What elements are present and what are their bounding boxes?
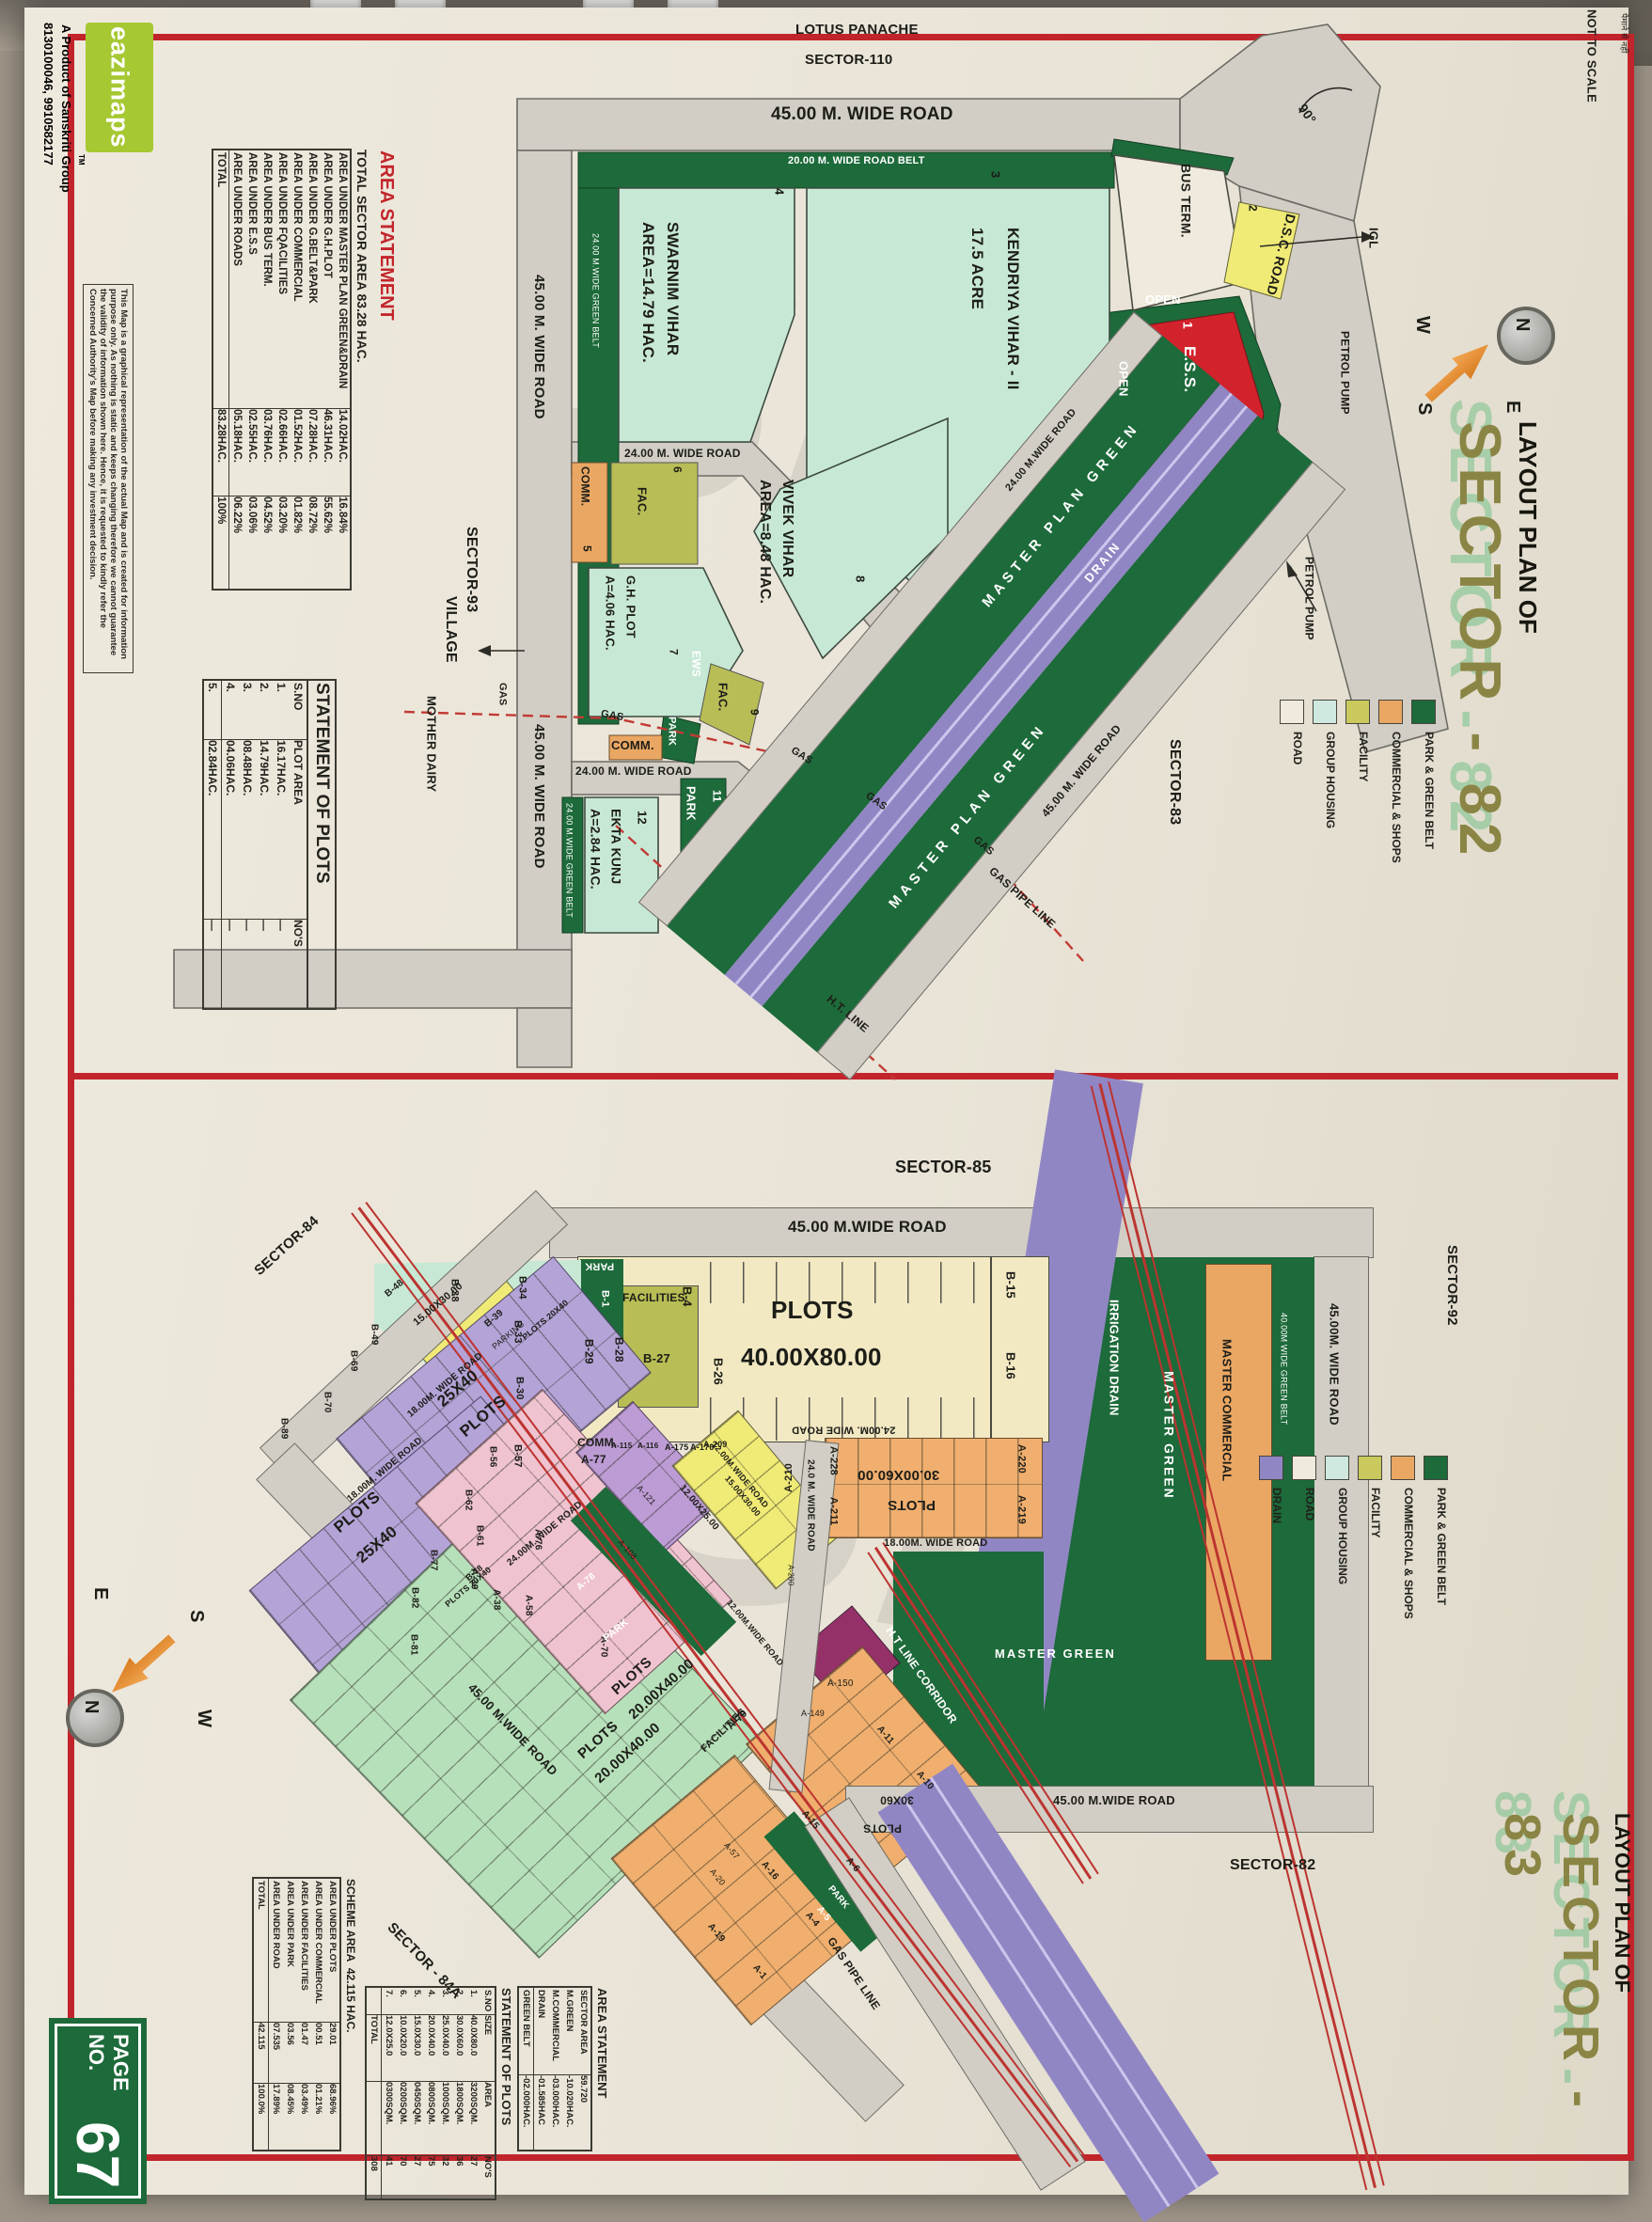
table-cell: 14.02HAC.	[335, 408, 350, 496]
map-label-village: VILLAGE	[442, 596, 458, 663]
map-label-lotus1: LOTUS PANACHE	[795, 23, 919, 38]
legend-label: PARK & GREEN BELT	[1423, 732, 1436, 849]
table-cell: 01.47	[297, 2022, 311, 2083]
map-label-a175: A-175	[665, 1443, 689, 1452]
table-cell: 5.	[204, 683, 221, 739]
table-title: AREA STATEMENT	[372, 149, 400, 591]
map-label-plots_word: PLOTS	[888, 1497, 936, 1512]
map-label-open: OPEN	[1145, 293, 1181, 307]
legend-sector-83: PARK & GREEN BELTCOMMERCIAL & SHOPSFACIL…	[1251, 1456, 1448, 1653]
legend-color-chip	[1391, 1456, 1415, 1480]
scheme-title-label: SCHEME AREA	[344, 1879, 357, 1962]
table-cell: AREA UNDER PLOTS	[325, 1881, 339, 2022]
map-label-b49: B-49	[369, 1324, 379, 1345]
map-label-b29: B-29	[583, 1339, 595, 1364]
table-cell: AREA UNDER FQACILITIES	[275, 152, 290, 408]
table-cell: 308	[367, 2155, 381, 2194]
table-cell: 08.45%	[283, 2083, 297, 2144]
map-label-n5: 5	[581, 545, 593, 552]
map-label-mgreen: MASTER GREEN	[1162, 1371, 1176, 1500]
map-label-belt24: 24.00 M.WIDE GREEN BELT	[564, 803, 573, 918]
map-label-a39: A-39	[468, 1568, 479, 1589]
table-cell: 29.01	[325, 2022, 339, 2083]
map-label-park: PARK	[585, 1260, 614, 1271]
map-label-vivek2: AREA=8.48 HAC.	[756, 480, 772, 604]
table-cell: 06.22%	[229, 496, 244, 568]
compass-e: E	[90, 1587, 110, 1600]
title-main: SECTOR - 83	[1493, 1813, 1610, 2189]
map-label-a77: A-77	[581, 1454, 606, 1466]
legend-label: GROUP HOUSING	[1324, 732, 1337, 828]
table-row: AREA UNDER COMMERCIAL00.5101.21%	[311, 1879, 325, 2150]
table-cell: —	[239, 919, 256, 999]
compass-s: S	[186, 1610, 206, 1623]
map-label-n4: 4	[773, 188, 786, 195]
map-label-fac: FAC.	[636, 487, 649, 515]
table-cell: 02.66HAC.	[275, 408, 290, 496]
legend-item: GROUP HOUSING	[1313, 700, 1337, 1010]
legend-item: FACILITY	[1345, 700, 1370, 1010]
legend-color-chip	[1292, 1456, 1316, 1480]
table-cell: 46.31HAC.	[320, 408, 335, 496]
map-label-road45: 45.00 M. WIDE ROAD	[771, 105, 953, 124]
map-label-b62: B-62	[463, 1489, 473, 1510]
table-cell: 0300SQM.	[382, 2081, 396, 2155]
table-cell: 08.48HAC.	[239, 739, 256, 919]
table-cell: 36	[452, 2155, 466, 2194]
map-label-n11: 11	[711, 790, 723, 802]
table-cell: 07.535	[269, 2022, 283, 2083]
map-label-scale_note_hi: पैमाने से नहीं	[1619, 13, 1628, 54]
table-cell: 4.	[424, 1990, 438, 2014]
map-label-a209: A-209	[703, 1441, 728, 1449]
map-label-gh2: A=4.06 HAC.	[604, 575, 617, 651]
table-cell: TOTAL	[213, 152, 228, 408]
map-label-a149: A-149	[801, 1710, 825, 1718]
table-row: 4.20.0X40.00800SQM.75	[424, 1988, 438, 2198]
table-row: 5.02.84HAC.—	[204, 681, 222, 1008]
table-cell: 4.	[222, 683, 239, 739]
table-cell: 3.	[438, 1990, 452, 2014]
legend-color-chip	[1313, 700, 1337, 724]
map-label-size3060: 30.00X60.00	[857, 1467, 939, 1482]
legend-color-chip	[1424, 1456, 1448, 1480]
legend-color-chip	[1325, 1456, 1349, 1480]
map-label-a115: A-115	[611, 1442, 632, 1450]
map-label-road24: 24.00 M. WIDE ROAD	[624, 448, 741, 460]
table-row: 2.30.0X60.01800SQM.36	[452, 1988, 466, 2198]
table-cell: AREA UNDER PARK	[283, 1881, 297, 2022]
map-label-b28: B-28	[613, 1337, 625, 1363]
map-label-road24: 24.00 M. WIDE ROAD	[575, 765, 692, 778]
map-label-petrol: PETROL PUMP	[1303, 557, 1315, 636]
map-label-sector82b: SECTOR-82	[1230, 1858, 1315, 1874]
table-cell: 0800SQM.	[424, 2081, 438, 2155]
map-label-mgreen: MASTER GREEN	[995, 1647, 1116, 1661]
statement-of-plots-83: STATEMENT OF PLOTS S.NOSIZEAREANO'S1.40.…	[365, 1986, 516, 2200]
table-row: 1.16.17HAC.—	[273, 681, 290, 1008]
map-label-road24: 24.00M. WIDE ROAD	[792, 1424, 895, 1435]
table-cell: AREA UNDER MASTER PLAN GREEN&DRAIN	[335, 152, 350, 408]
table-cell: 0450SQM.	[410, 2081, 424, 2155]
legend-color-chip	[1280, 700, 1304, 724]
table-cell: 25.0X40.0	[438, 2014, 452, 2081]
table-row: AREA UNDER E.S.S02.55HAC.03.06%	[244, 150, 260, 589]
compass-sector-82: N W S E	[1401, 299, 1561, 440]
table-row: 3.08.48HAC.—	[239, 681, 256, 1008]
scheme-area-table-83: SCHEME AREA 42.115 HAC. AREA UNDER PLOTS…	[252, 1877, 360, 2151]
map-label-b89: B-89	[278, 1418, 289, 1439]
map-label-n7: 7	[668, 649, 680, 655]
table-cell: PLOT AREA	[290, 739, 307, 919]
table-row: AREA UNDER ROADS05.18HAC.06.22%	[229, 150, 244, 589]
legend-label: ROAD	[1303, 1488, 1316, 1521]
map-label-road18: 18.00M. WIDE ROAD	[884, 1538, 987, 1550]
legend-color-chip	[1259, 1456, 1283, 1480]
table-cell: 14.79HAC.	[256, 739, 273, 919]
map-label-gh1: G.H. PLOT	[624, 575, 637, 638]
table-cell: 100%	[213, 496, 228, 568]
map-label-not_to_scale: NOT TO SCALE	[1585, 9, 1598, 102]
table-row: GREEN BELT-02.000HAC.	[519, 1988, 534, 2150]
table-cell: -01.585HAC	[534, 2074, 548, 2152]
table-cell: NO'S	[290, 919, 307, 999]
map-label-vivek1: VIVEK VIHAR	[779, 480, 795, 577]
title-sector-82: LAYOUT PLAN OF SECTOR - 82	[1446, 421, 1542, 1042]
table-cell: —	[222, 919, 239, 999]
table-row: 5.15.0X30.00450SQM.27	[410, 1988, 424, 2198]
area-statement-82: AREA STATEMENT TOTAL SECTOR AREA 83.28 H…	[212, 149, 400, 591]
table-cell: 04.06HAC.	[222, 739, 239, 919]
map-label-kendriya1: KENDRIYA VIHAR - II	[1004, 228, 1021, 390]
legend-label: DRAIN	[1270, 1488, 1283, 1523]
table-cell: 03.56	[283, 2022, 297, 2083]
table-row: AREA UNDER FACILITIES01.4703.49%	[297, 1879, 311, 2150]
table-cell: 1.	[273, 683, 290, 739]
map-label-plots_word: PLOTS	[771, 1298, 854, 1323]
map-label-size3060s: 30X60	[880, 1794, 914, 1806]
map-label-b82: B-82	[409, 1587, 419, 1608]
table-cell: 12.0X25.0	[382, 2014, 396, 2081]
map-label-a220: A-220	[1015, 1444, 1027, 1473]
table-cell: 30.0X60.0	[452, 2014, 466, 2081]
table-cell: SIZE	[480, 2014, 495, 2081]
table-title: AREA STATEMENT	[592, 1986, 612, 2151]
table-cell: 32	[438, 2155, 452, 2194]
map-label-n8: 8	[854, 575, 867, 582]
map-label-belt24: 24.00 M.WIDE GREEN BELT	[590, 233, 599, 348]
title-sector-83: LAYOUT PLAN OF SECTOR - 83	[1493, 1813, 1634, 2189]
map-label-road45: 45.00 M.WIDE ROAD	[788, 1219, 947, 1236]
table-row: AREA UNDER COMMERCIAL01.52HAC.01.82%	[290, 150, 305, 589]
table-row: AREA UNDER BUS TERM.03.76HAC.04.52%	[260, 150, 275, 589]
table-cell: —	[256, 919, 273, 999]
table-cell	[367, 1990, 381, 2014]
brand-tagline: A Product of Sanskriti Group	[55, 23, 77, 323]
map-label-b1: B-1	[599, 1290, 610, 1307]
map-label-open: OPEN	[1117, 361, 1130, 397]
map-label-a210: A-210	[784, 1463, 795, 1492]
map-label-b57: B-57	[511, 1444, 523, 1468]
map-label-road45: 45.00 M.WIDE ROAD	[1053, 1794, 1175, 1807]
table-title: STATEMENT OF PLOTS	[308, 679, 337, 1010]
table-row: AREA UNDER PARK03.5608.45%	[283, 1879, 297, 2150]
table-cell: 02.55HAC.	[244, 408, 260, 496]
table-cell: 00.51	[311, 2022, 325, 2083]
brand-block: eazimaps TM A Product of Sanskriti Group…	[41, 23, 153, 323]
table-cell: 1000SQM.	[438, 2081, 452, 2155]
map-label-a76: A-76	[532, 1529, 543, 1550]
table-cell: 5.	[410, 1990, 424, 2014]
legend-label: ROAD	[1291, 732, 1304, 764]
map-label-comm: COMM.	[579, 466, 591, 506]
map-label-facilities: FACILITIES	[622, 1292, 685, 1304]
map-label-greenbelt40: 40.00M WIDE GREEN BELT	[1279, 1313, 1287, 1425]
eazimaps-logo: eazimaps	[86, 23, 153, 152]
map-label-kendriya2: 17.5 ACRE	[968, 228, 985, 309]
table-row: 2.14.79HAC.—	[256, 681, 273, 1008]
map-label-sector85: SECTOR-85	[895, 1158, 992, 1176]
map-label-fac: FAC.	[716, 683, 730, 711]
table-cell: 55.62%	[320, 496, 335, 568]
map-label-b4: B-4	[681, 1286, 694, 1307]
map-label-sector92: SECTOR-92	[1444, 1245, 1459, 1326]
table-row: 1.40.0X80.03200SQM.27	[466, 1988, 480, 2198]
table-cell: 2.	[256, 683, 273, 739]
table-cell: M.GREEN	[562, 1990, 576, 2074]
map-label-busterm: BUS TERM.	[1179, 164, 1193, 238]
table-row: DRAIN-01.585HAC	[534, 1988, 548, 2150]
table-subtitle: TOTAL SECTOR AREA 83.28 HAC.	[352, 149, 372, 591]
legend-label: COMMERCIAL & SHOPS	[1390, 732, 1403, 863]
statement-of-plots-83-table: S.NOSIZEAREANO'S1.40.0X80.03200SQM.272.3…	[365, 1986, 496, 2200]
legend-color-chip	[1378, 700, 1403, 724]
map-label-road45b: 45.00M. WIDE ROAD	[1328, 1303, 1341, 1426]
legend-sector-82: PARK & GREEN BELTCOMMERCIAL & SHOPSFACIL…	[1271, 700, 1436, 1010]
table-cell: AREA UNDER ROADS	[229, 152, 244, 408]
page-number-label: PAGE NO.	[63, 2034, 133, 2121]
table-cell: 0200SQM.	[396, 2081, 410, 2155]
area-statement-83-table: SECTOR AREA59.720M.GREEN-10.020HAC.M.COM…	[517, 1986, 592, 2151]
table-row: SECTOR AREA59.720	[576, 1988, 590, 2150]
table-cell: S.NO	[480, 1990, 495, 2014]
legend-item: ROAD	[1280, 700, 1304, 1010]
table-cell: 40.0X80.0	[466, 2014, 480, 2081]
table-row: AREA UNDER G.BELT&PARK07.28HAC.08.72%	[305, 150, 320, 589]
table-cell: 01.21%	[311, 2083, 325, 2144]
map-label-lotus2: SECTOR-110	[805, 53, 892, 68]
map-label-a58: A-58	[523, 1595, 533, 1615]
compass-n: N	[81, 1700, 101, 1714]
legend-label: GROUP HOUSING	[1336, 1488, 1349, 1584]
disclaimer-block: This Map is a graphical representation o…	[83, 284, 134, 673]
compass-e: E	[1503, 401, 1522, 414]
table-row: AREA UNDER ROAD07.53517.89%	[269, 1879, 283, 2150]
north-circle	[66, 1689, 124, 1747]
table-cell: AREA UNDER G.BELT&PARK	[305, 152, 320, 408]
table-row: 7.12.0X25.00300SQM.41	[382, 1988, 396, 2198]
map-label-swarnim1: SWARNIM VIHAR	[664, 222, 681, 355]
table-cell: 10.0X20.0	[396, 2014, 410, 2081]
page-number: 67	[63, 2121, 133, 2188]
disclaimer-text: This Map is a graphical representation o…	[83, 284, 134, 673]
table-cell: AREA UNDER E.S.S	[244, 152, 260, 408]
north-arrow-icon	[102, 1628, 181, 1703]
map-label-a116: A-116	[637, 1442, 658, 1450]
legend-item: COMMERCIAL & SHOPS	[1378, 700, 1403, 1010]
table-cell: 27	[410, 2155, 424, 2194]
table-cell: 04.52%	[260, 496, 275, 568]
map-label-a200: A-200	[786, 1565, 794, 1585]
table-cell: 68.96%	[325, 2083, 339, 2144]
map-label-comm: COMM.	[611, 739, 654, 752]
table-cell: 03.20%	[275, 496, 290, 568]
table-cell: 17.89%	[269, 2083, 283, 2144]
table-cell: 100.0%	[254, 2083, 268, 2144]
map-label-mcommercial: MASTER COMMERCIAL	[1220, 1339, 1234, 1481]
table-cell: -02.000HAC.	[519, 2074, 533, 2152]
table-cell: 3.	[239, 683, 256, 739]
map-label-n2: 2	[1247, 205, 1259, 212]
map-label-ekta1: EKTA KUNJ	[609, 809, 623, 884]
table-cell: AREA UNDER COMMERCIAL	[290, 152, 305, 408]
scanned-map-book-photo: { "page": { "not_to_scale": "NOT TO SCAL…	[0, 0, 1652, 2202]
table-cell: 16.84%	[335, 496, 350, 568]
title-main: SECTOR - 82	[1446, 421, 1513, 1042]
title-prefix: LAYOUT PLAN OF	[1610, 1813, 1634, 2189]
legend-label: COMMERCIAL & SHOPS	[1402, 1488, 1415, 1619]
logo-text: eazimaps	[105, 26, 134, 149]
table-cell: 59.720	[576, 2074, 590, 2152]
table-row: AREA UNDER MASTER PLAN GREEN&DRAIN14.02H…	[335, 150, 350, 589]
map-label-n12: 12	[636, 811, 649, 825]
map-label-b81: B-81	[408, 1634, 418, 1655]
compass-w: W	[1412, 316, 1432, 334]
compass-sector-83: N E S W	[64, 1576, 224, 1764]
table-row: AREA UNDER G.H.PLOT46.31HAC.55.62%	[320, 150, 335, 589]
table-cell: 15.0X30.0	[410, 2014, 424, 2081]
map-label-n1: 1	[1181, 322, 1195, 329]
legend-item: DRAIN	[1259, 1456, 1283, 1653]
map-label-sector93: SECTOR-93	[463, 527, 479, 612]
map-label-mother: MOTHER DAIRY	[425, 696, 438, 786]
table-cell: M.COMMERCIAL	[548, 1990, 562, 2074]
north-circle	[1497, 307, 1555, 365]
legend-label: FACILITY	[1357, 732, 1370, 781]
table-cell: DRAIN	[534, 1990, 548, 2074]
table-title: SCHEME AREA 42.115 HAC.	[341, 1877, 360, 2151]
table-row: 4.04.06HAC.—	[222, 681, 239, 1008]
title-prefix: LAYOUT PLAN OF	[1513, 421, 1542, 1042]
map-label-igl: IGL	[1367, 228, 1380, 248]
legend-label: FACILITY	[1369, 1488, 1382, 1537]
map-label-b56: B-56	[487, 1446, 497, 1467]
table-cell: 01.82%	[290, 496, 305, 568]
table-cell: 03.49%	[297, 2083, 311, 2144]
map-label-b26: B-26	[712, 1358, 725, 1385]
brand-phone: 8130100046, 9910582177	[41, 23, 55, 323]
table-row: TOTAL42.115100.0%	[254, 1879, 269, 2150]
table-cell: 41	[382, 2155, 396, 2194]
table-row: AREA UNDER FQACILITIES02.66HAC.03.20%	[275, 150, 290, 589]
map-label-b69: B-69	[348, 1350, 358, 1371]
table-cell: AREA UNDER FACILITIES	[297, 1881, 311, 2022]
map-label-b70: B-70	[322, 1392, 332, 1412]
table-cell: AREA UNDER ROAD	[269, 1881, 283, 2022]
map-label-b34: B-34	[516, 1276, 527, 1300]
table-cell: 05.18HAC.	[229, 408, 244, 496]
north-arrow-icon	[1419, 334, 1498, 409]
legend-item: GROUP HOUSING	[1325, 1456, 1349, 1653]
table-cell: 2.	[452, 1990, 466, 2014]
table-row: TOTAL308	[367, 1988, 382, 2198]
table-row: S.NOPLOT AREANO'S	[290, 681, 307, 1008]
table-cell: 6.	[396, 1990, 410, 2014]
table-cell: 1.	[466, 1990, 480, 2014]
table-cell: TOTAL	[367, 2014, 381, 2081]
table-cell: 16.17HAC.	[273, 739, 290, 919]
table-cell: 20.0X40.0	[424, 2014, 438, 2081]
statement-of-plots-82-table: S.NOPLOT AREANO'S1.16.17HAC.—2.14.79HAC.…	[202, 679, 308, 1010]
table-cell: -10.020HAC.	[562, 2074, 576, 2152]
table-cell: —	[204, 919, 221, 999]
map-label-b77: B-77	[428, 1550, 438, 1570]
plot-line	[990, 1257, 992, 1442]
table-row: S.NOSIZEAREANO'S	[480, 1988, 495, 2198]
map-label-irrigation: IRRIGATION DRAIN	[1108, 1300, 1121, 1416]
table-cell: 08.72%	[305, 496, 320, 568]
table-row: 3.25.0X40.01000SQM.32	[438, 1988, 452, 2198]
table-cell: 03.06%	[244, 496, 260, 568]
statement-of-plots-82: STATEMENT OF PLOTS S.NOPLOT AREANO'S1.16…	[202, 679, 337, 1010]
map-label-ews: EWS	[690, 651, 702, 677]
map-label-n3: 3	[989, 171, 1002, 178]
map-label-plots_word: PLOTS	[863, 1822, 902, 1835]
legend-item: PARK & GREEN BELT	[1411, 700, 1436, 1010]
map-label-b61: B-61	[474, 1525, 484, 1546]
map-label-a228: A-228	[827, 1446, 839, 1475]
compass-n: N	[1512, 318, 1532, 332]
table-cell: —	[273, 919, 290, 999]
map-label-b16: B-16	[1004, 1352, 1017, 1379]
map-label-swarnim2: AREA=14.79 HAC.	[639, 222, 656, 363]
area-statement-82-table: AREA UNDER MASTER PLAN GREEN&DRAIN14.02H…	[212, 149, 352, 591]
table-row: M.GREEN-10.020HAC.	[562, 1988, 576, 2150]
table-cell: 02.84HAC.	[204, 739, 221, 919]
legend-item: PARK & GREEN BELT	[1424, 1456, 1448, 1653]
table-cell	[367, 2081, 381, 2155]
table-title: STATEMENT OF PLOTS	[496, 1986, 516, 2200]
legend-color-chip	[1345, 700, 1370, 724]
plots-30x60-strip	[826, 1439, 1042, 1537]
legend-item: FACILITY	[1358, 1456, 1382, 1653]
table-cell: AREA UNDER BUS TERM.	[260, 152, 275, 408]
map-label-belt20: 20.00 M. WIDE ROAD BELT	[788, 156, 925, 167]
table-cell: TOTAL	[254, 1881, 268, 2022]
table-cell: 7.	[382, 1990, 396, 2014]
map-label-b30: B-30	[513, 1377, 525, 1400]
map-label-a38: A-38	[491, 1589, 501, 1610]
table-cell: 42.115	[254, 2022, 268, 2083]
table-row: M.COMMERCIAL-03.000HAC.	[548, 1988, 562, 2150]
table-cell: 01.52HAC.	[290, 408, 305, 496]
scheme-title-value: 42.115 HAC.	[344, 1968, 357, 2033]
table-cell: 3200SQM.	[466, 2081, 480, 2155]
map-label-park: PARK	[684, 786, 698, 821]
page-number-box: PAGE NO. 67	[55, 2024, 141, 2198]
map-label-b15: B-15	[1004, 1271, 1017, 1299]
compass-w: W	[194, 1710, 213, 1727]
